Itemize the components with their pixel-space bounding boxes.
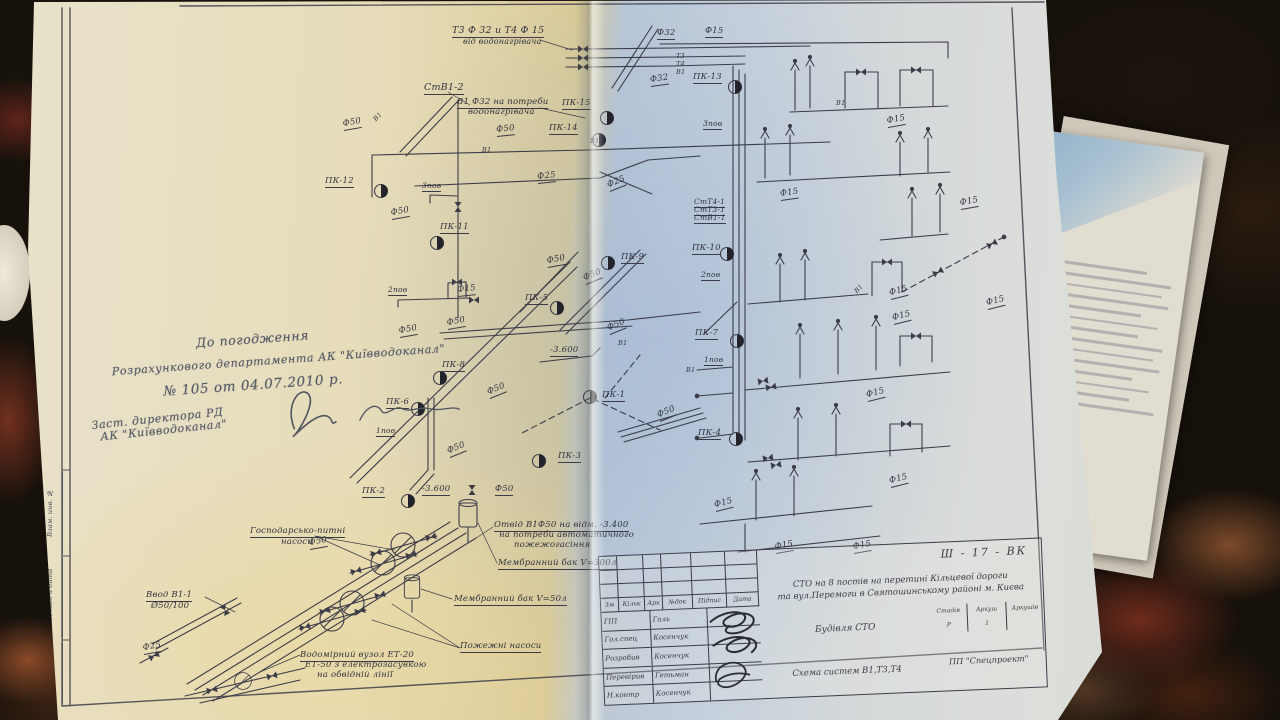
approval-note: До погодження Розрахункового департамент… <box>100 314 449 477</box>
diagram-label: Ф50 <box>486 382 507 399</box>
diagram-label: ПК-7 <box>695 329 718 340</box>
diagram-label: Ф15 <box>457 284 476 296</box>
diagram-label: Ф25 <box>606 175 627 192</box>
diagram-label: ЕТ-50 з електрозасувкою <box>305 661 426 670</box>
diagram-label: Т4 <box>676 61 685 68</box>
diagram-label: Ф50 <box>495 485 513 496</box>
diagram-label: Ф15 <box>959 196 979 210</box>
diagram-label: Ф15 <box>891 310 911 325</box>
diagram-label: Ф25 <box>142 641 162 655</box>
diagram-label: Т3 Ф 32 и Т4 Ф 15 <box>452 26 544 38</box>
diagram-label: Ø50/100 <box>151 602 189 611</box>
diagram-label: ПК-8 <box>442 361 465 372</box>
sign-role: Гол.спец <box>602 629 652 649</box>
diagram-label: 2пов <box>701 271 720 281</box>
diagram-label: пожежогасіння <box>514 541 590 550</box>
title-block-signatures-scribble <box>699 602 773 701</box>
margin-stamp-vzam-inv: Взам. инв. № <box>46 472 63 554</box>
diagram-label: В1 <box>836 100 845 107</box>
diagram-label: СтВ1-2 <box>424 83 464 95</box>
col-header: Арк <box>645 596 664 611</box>
diagram-label: СтВ1-1 <box>694 214 726 224</box>
approval-line: Розрахункового департамента АК "Київводо… <box>111 342 445 378</box>
diagram-label: 3пов <box>422 182 441 192</box>
diagram-label: Т3 <box>676 53 685 60</box>
diagram-label: ПК-2 <box>362 487 385 498</box>
margin-stamp-podpis-data: Подпись и дата <box>46 558 63 638</box>
diagram-label: ПК-11 <box>440 223 469 234</box>
diagram-label: ПК-3 <box>558 452 581 463</box>
diagram-label: Ф50 <box>656 405 677 422</box>
diagram-label: на потреби автоматичного <box>499 531 634 540</box>
diagram-label: ПК-9 <box>621 253 644 264</box>
diagram-label: Ф15 <box>886 114 906 128</box>
diagram-label: 1пов <box>704 356 723 366</box>
diagram-label: 2пов <box>388 286 407 296</box>
sheets-value <box>1006 612 1044 630</box>
diagram-label: В1 <box>853 283 864 294</box>
diagram-label: ПК-1 <box>602 391 625 402</box>
sign-role: Н.контр <box>605 685 655 705</box>
stage-value: Р <box>930 616 969 634</box>
diagram-label: Ф15 <box>865 387 885 402</box>
diagram-label: Ф50 <box>606 318 627 335</box>
diagram-label: від водонагрівача <box>463 38 542 46</box>
diagram-label: на обвідній лінії <box>317 671 393 680</box>
handwritten-signature <box>273 373 467 446</box>
diagram-label: ПК-5 <box>525 294 548 305</box>
sign-role: Розробив <box>603 648 653 668</box>
diagram-label: Ф32 <box>650 74 670 87</box>
diagram-label: Ф50 <box>582 268 603 285</box>
diagram-label: ПК-15 <box>562 99 591 110</box>
sheet-value: 1 <box>968 614 1007 632</box>
diagram-label: В1 <box>676 69 685 76</box>
diagram-label: Ф15 <box>888 473 908 488</box>
diagram-label: Ф50 <box>308 536 328 550</box>
diagram-label: Ф25 <box>537 171 556 183</box>
title-block: Ш - 17 - ВК СТО на 8 постів на перетині … <box>598 537 1048 705</box>
approval-line: До погодження <box>196 327 310 350</box>
diagram-label: В1 <box>686 367 695 374</box>
diagram-label: водонагрівача <box>468 108 535 117</box>
diagram-label: В1 <box>618 340 627 347</box>
diagram-label: Ф15 <box>705 27 723 38</box>
diagram-label: ПК-14 <box>549 124 578 135</box>
plate-at-left-edge <box>0 225 30 321</box>
diagram-label: Ф50 <box>496 124 515 136</box>
diagram-label: Ф50 <box>446 441 467 458</box>
diagram-label: 3пов <box>703 120 722 130</box>
diagram-label: Ф15 <box>713 497 733 512</box>
diagram-label: ПК-4 <box>698 429 721 440</box>
diagram-label: ПК-10 <box>692 244 721 255</box>
col-header: №док <box>663 595 694 610</box>
diagram-label: Пожежні насоси <box>460 642 541 653</box>
title-block-drawing-name: Схема систем В1,Т3,Т4 <box>761 645 933 698</box>
diagram-label: Ввод В1-1 <box>146 591 192 602</box>
title-block-company: ПП "Спецпроект" <box>931 628 1047 691</box>
diagram-label: В1 <box>590 138 599 145</box>
diagram-label: Ф50 <box>390 206 410 220</box>
diagram-label: В1 <box>372 111 383 122</box>
diagram-label: -3.600 <box>422 485 450 496</box>
diagram-label: -3.600 <box>550 346 578 357</box>
sign-role: Перевірив <box>604 667 654 687</box>
diagram-label: Ф50 <box>546 254 566 268</box>
margin-stamp-inv-podl: Инв. № подл. <box>46 642 63 704</box>
diagram-label: Ф50 <box>446 316 466 330</box>
photo-scene: Т3 Ф 32 и Т4 Ф 15від водонагрівачаФ32Ф15… <box>0 0 1280 720</box>
diagram-label: Мембранний бак V=50л <box>454 595 567 606</box>
diagram-label: ПК-13 <box>693 73 722 84</box>
diagram-label: В1 <box>482 147 491 154</box>
diagram-label: Ф15 <box>888 285 908 300</box>
diagram-label: Господарсько-питні <box>250 527 345 538</box>
diagram-label: ПК-12 <box>325 177 354 188</box>
col-header: Кільк <box>619 597 646 612</box>
sign-role: ГІП <box>601 611 651 631</box>
diagram-label: Ф32 <box>657 29 675 40</box>
diagram-label: Ф15 <box>985 295 1005 310</box>
col-header: Зм <box>601 598 620 613</box>
diagram-label: Ф50 <box>342 117 362 131</box>
diagram-label: Ф15 <box>780 188 800 201</box>
